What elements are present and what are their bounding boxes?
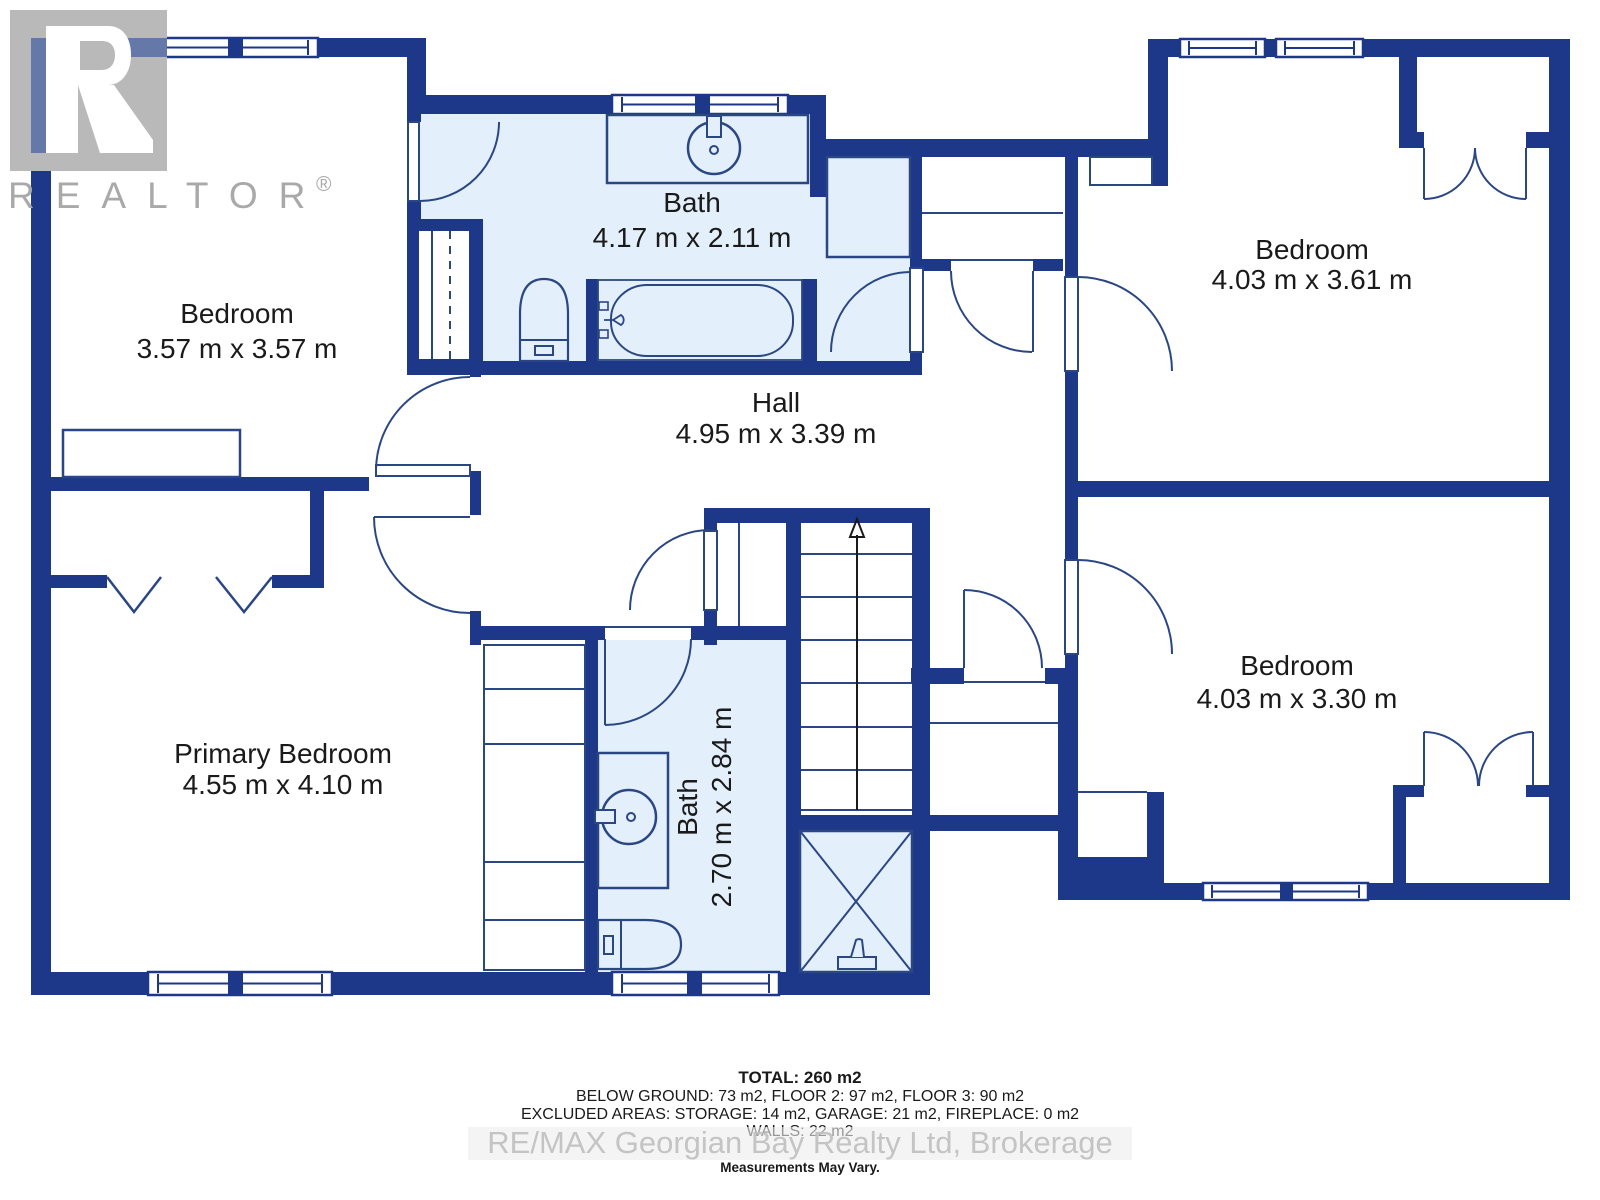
svg-text:Measurements May Vary.: Measurements May Vary. (720, 1160, 880, 1175)
svg-text:RE/MAX Georgian Bay Realty Ltd: RE/MAX Georgian Bay Realty Ltd, Brokerag… (487, 1125, 1112, 1160)
svg-text:REALTOR: REALTOR (8, 175, 326, 216)
svg-text:4.17 m x 2.11 m: 4.17 m x 2.11 m (593, 222, 792, 253)
svg-text:4.03 m x 3.61 m: 4.03 m x 3.61 m (1212, 264, 1413, 295)
svg-text:TOTAL: 260 m2: TOTAL: 260 m2 (738, 1068, 861, 1087)
svg-text:Hall: Hall (752, 387, 800, 418)
svg-text:3.57 m x 3.57 m: 3.57 m x 3.57 m (137, 333, 338, 364)
svg-text:4.95 m x 3.39 m: 4.95 m x 3.39 m (676, 418, 877, 449)
svg-text:Bedroom: Bedroom (1240, 650, 1354, 681)
svg-text:4.55 m x 4.10 m: 4.55 m x 4.10 m (183, 769, 384, 800)
svg-text:®: ® (316, 173, 332, 196)
svg-text:EXCLUDED AREAS: STORAGE: 14 m2: EXCLUDED AREAS: STORAGE: 14 m2, GARAGE: … (521, 1106, 1079, 1123)
svg-text:2.70 m x 2.84 m: 2.70 m x 2.84 m (706, 707, 737, 908)
svg-text:Bedroom: Bedroom (180, 298, 294, 329)
svg-text:4.03 m x 3.30 m: 4.03 m x 3.30 m (1197, 683, 1398, 714)
svg-text:Bath: Bath (672, 778, 703, 836)
svg-text:Bedroom: Bedroom (1255, 234, 1369, 265)
svg-text:Bath: Bath (663, 187, 721, 218)
svg-text:Primary Bedroom: Primary Bedroom (174, 738, 392, 769)
svg-text:BELOW GROUND: 73 m2, FLOOR 2:: BELOW GROUND: 73 m2, FLOOR 2: 97 m2, FLO… (576, 1088, 1024, 1105)
